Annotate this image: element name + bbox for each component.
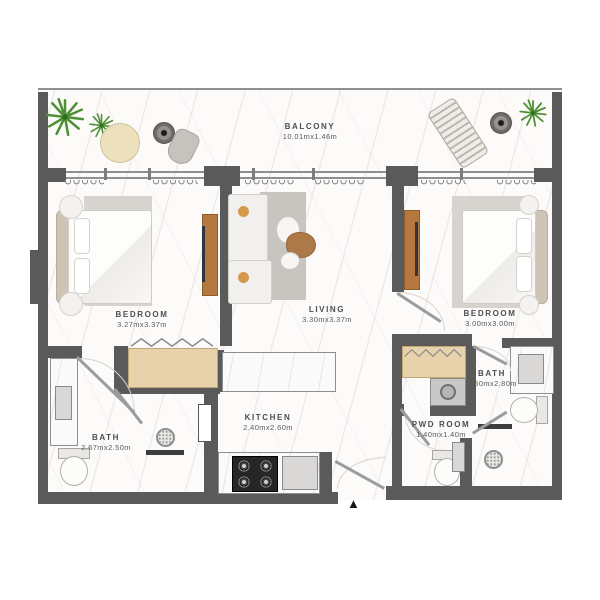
room-dims: 3.27mx3.37m [82, 320, 202, 329]
wall-balcony-right [552, 92, 562, 178]
mullion [104, 168, 107, 180]
floor-plan: ▲ BALCONY 10.01mx1.46m BEDROOM 3.27mx3.3… [0, 0, 600, 600]
bed-headboard [534, 210, 548, 304]
room-name: KITCHEN [208, 413, 328, 422]
balcony-railing [38, 88, 562, 90]
wall-right [552, 172, 562, 496]
kitchen-island [222, 352, 336, 392]
kitchen-sink [282, 456, 318, 490]
coffee-table [280, 252, 300, 270]
tv-icon [202, 226, 205, 282]
washbasin [452, 442, 465, 472]
wardrobe [128, 348, 218, 388]
room-dims: 3.30mx3.37m [267, 315, 387, 324]
side-table [519, 195, 539, 215]
mullion [252, 168, 255, 180]
wall-bedroom2-bottom [392, 334, 472, 346]
room-label-balcony: BALCONY 10.01mx1.46m [250, 122, 370, 141]
room-label-bedroom-right: BEDROOM 3.00mx3.00m [430, 309, 550, 328]
room-name: BATH [432, 369, 552, 378]
wall-kitchen-entry [318, 452, 332, 492]
outdoor-pouf [100, 123, 140, 163]
sofa-pillow [238, 206, 249, 217]
wall-bottom-right [386, 486, 562, 500]
mullion [312, 168, 315, 180]
wall-living-bedroom2 [392, 180, 404, 292]
room-label-bath-left: BATH 2.67mx2.50m [46, 433, 166, 452]
room-label-bedroom-left: BEDROOM 3.27mx3.37m [82, 310, 202, 329]
room-name: LIVING [267, 305, 387, 314]
glass-wall-line [48, 171, 552, 173]
pillow [516, 256, 532, 292]
planter [490, 112, 512, 134]
curtain [64, 180, 104, 189]
room-dims: 10.01mx1.46m [250, 132, 370, 141]
tv-icon [415, 222, 418, 276]
curtain [496, 180, 536, 189]
stove [232, 456, 278, 492]
shower-drain-icon [484, 450, 503, 469]
room-name: BEDROOM [82, 310, 202, 319]
plant-icon [44, 96, 86, 138]
room-dims: 1.40mx1.40m [381, 430, 501, 439]
wall-closet2-left [392, 346, 402, 404]
hanger-rail-icon [404, 348, 462, 358]
sofa-chaise [228, 260, 272, 304]
room-dims: 3.00mx3.00m [430, 319, 550, 328]
room-name: BATH [46, 433, 166, 442]
bathroom-sink [55, 386, 72, 420]
curtain [420, 180, 466, 189]
wall-bedroom1-bottom [38, 346, 82, 358]
mullion [148, 168, 151, 180]
room-name: BALCONY [250, 122, 370, 131]
sofa [228, 194, 268, 264]
glass-wall-line [48, 177, 552, 179]
pouf [59, 292, 83, 316]
entrance-marker: ▲ [347, 497, 360, 510]
toilet [510, 397, 538, 423]
toilet [60, 456, 88, 486]
plant-icon [518, 98, 548, 128]
room-label-living: LIVING 3.30mx3.37m [267, 305, 387, 324]
room-dims: 1.50mx2.80m [432, 379, 552, 388]
room-dims: 2.40mx2.60m [208, 423, 328, 432]
room-label-kitchen: KITCHEN 2.40mx2.60m [208, 413, 328, 432]
glass-pier [534, 168, 562, 182]
pillow [74, 218, 90, 254]
room-dims: 2.67mx2.50m [46, 443, 166, 452]
pillow [74, 258, 90, 294]
pouf [59, 195, 83, 219]
mullion [460, 168, 463, 180]
room-label-pwd-room: PWD ROOM 1.40mx1.40m [381, 420, 501, 439]
curtain [152, 180, 198, 189]
wall-left [38, 172, 48, 504]
room-label-bath-right: BATH 1.50mx2.80m [432, 369, 552, 388]
curtain [244, 180, 294, 189]
room-name: PWD ROOM [381, 420, 501, 429]
glass-pier [38, 168, 66, 182]
wall-left-pier [30, 250, 40, 304]
sofa-pillow [238, 272, 249, 283]
pillow [516, 218, 532, 254]
room-name: BEDROOM [430, 309, 550, 318]
curtain [314, 180, 364, 189]
hanger-rail-icon [130, 337, 214, 348]
